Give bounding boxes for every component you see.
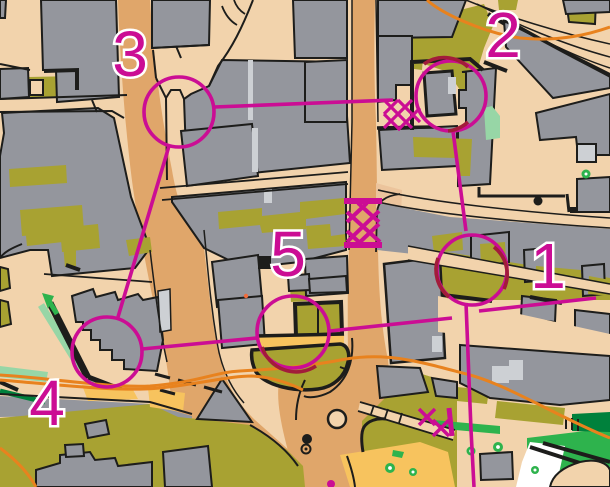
svg-text:2: 2 [485, 0, 521, 71]
svg-text:4: 4 [29, 367, 65, 439]
svg-text:5: 5 [270, 218, 306, 290]
svg-text:1: 1 [530, 230, 566, 302]
svg-text:3: 3 [112, 18, 148, 90]
